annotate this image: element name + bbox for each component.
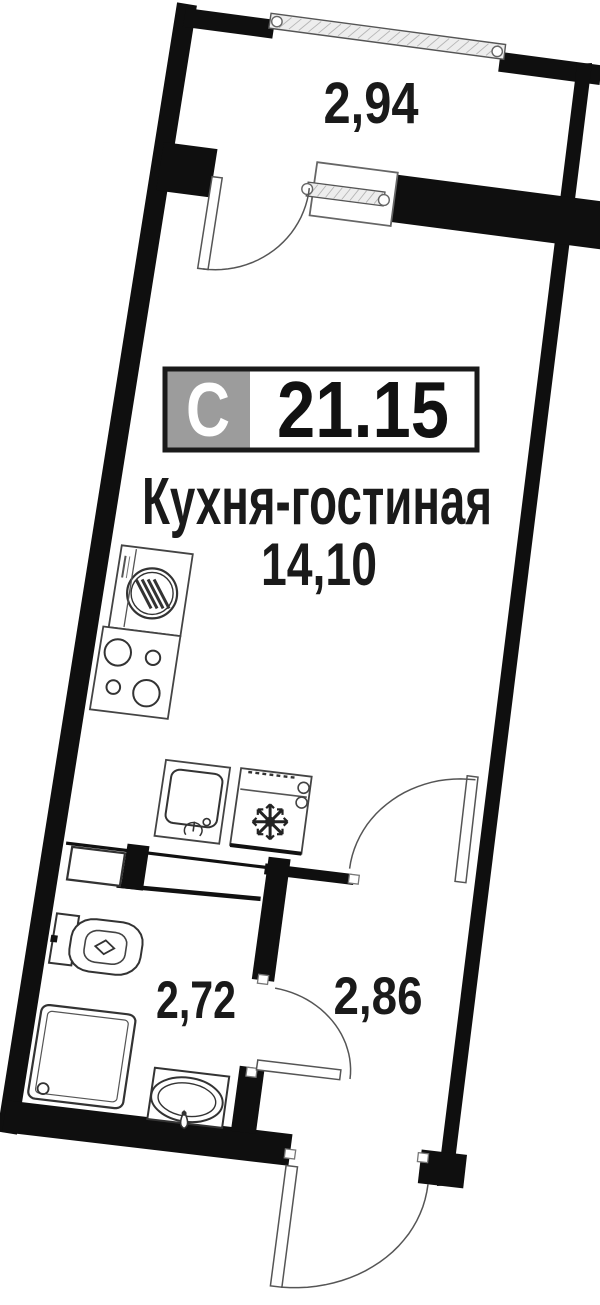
svg-text:Кухня-гостиная: Кухня-гостиная (142, 464, 492, 539)
svg-text:2,72: 2,72 (156, 971, 236, 1030)
svg-text:2,94: 2,94 (324, 71, 419, 136)
svg-text:21.15: 21.15 (277, 365, 449, 454)
svg-text:С: С (186, 368, 230, 453)
svg-text:2,86: 2,86 (334, 967, 423, 1026)
svg-text:14,10: 14,10 (261, 531, 377, 598)
